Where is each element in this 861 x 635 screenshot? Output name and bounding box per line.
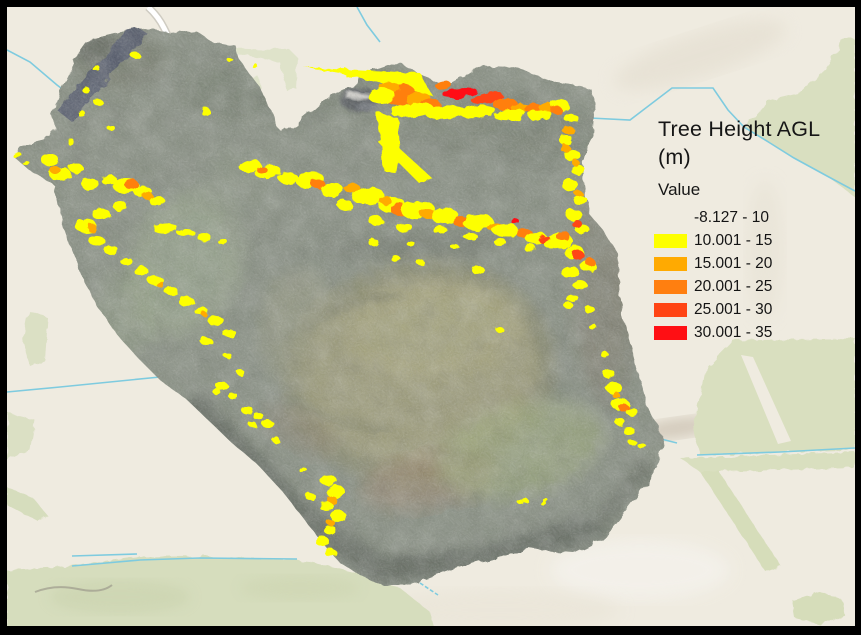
legend-class-label: 25.001 - 30 xyxy=(694,301,772,319)
legend-swatch-class3 xyxy=(654,280,687,294)
legend-swatch-class2 xyxy=(654,257,687,271)
legend-row: 15.001 - 20 xyxy=(648,252,833,275)
legend-swatch-class1 xyxy=(654,234,687,248)
legend-row: 20.001 - 25 xyxy=(648,275,833,298)
legend-row: 30.001 - 35 xyxy=(648,321,833,344)
legend-class-label: 20.001 - 25 xyxy=(694,278,772,296)
map-export-window: Tree Height AGL (m) Value -8.127 - 10 10… xyxy=(0,0,861,635)
legend-class-label: 30.001 - 35 xyxy=(694,324,772,342)
legend-class-label: -8.127 - 10 xyxy=(694,209,769,227)
legend-class-label: 15.001 - 20 xyxy=(694,255,772,273)
legend-title-line2: (m) xyxy=(658,143,833,171)
legend-title-line1: Tree Height AGL xyxy=(658,115,833,143)
legend-row: 10.001 - 15 xyxy=(648,229,833,252)
legend-row: -8.127 - 10 xyxy=(648,206,833,229)
legend-field-label: Value xyxy=(648,180,833,200)
legend-swatch-class4 xyxy=(654,303,687,317)
legend: Tree Height AGL (m) Value -8.127 - 10 10… xyxy=(648,115,833,344)
legend-row: 25.001 - 30 xyxy=(648,298,833,321)
map-canvas[interactable]: Tree Height AGL (m) Value -8.127 - 10 10… xyxy=(7,7,855,626)
legend-title: Tree Height AGL (m) xyxy=(648,115,833,171)
legend-swatch-class5 xyxy=(654,326,687,340)
legend-classes: -8.127 - 10 10.001 - 15 15.001 - 20 20.0… xyxy=(648,206,833,344)
legend-class-label: 10.001 - 15 xyxy=(694,232,772,250)
legend-swatch-class0 xyxy=(654,211,687,225)
